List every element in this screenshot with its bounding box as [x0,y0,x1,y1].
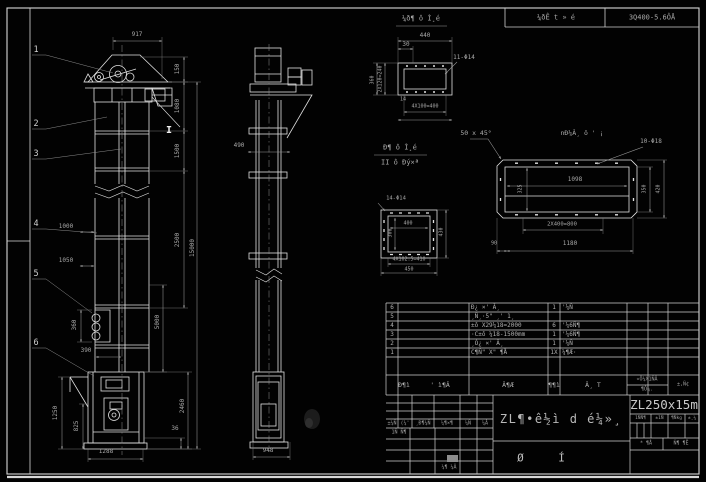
dimension-d1098: 1098 [568,177,582,183]
bom-row-2-no: 2 [390,341,394,347]
dimension-d360a: 360 [371,75,376,84]
bom-header-no: Ð¶ì [398,382,410,389]
dimension-d350: 350 [643,184,648,193]
bom-row-1-name: C¶Ñ" X" ¶Å [471,350,507,356]
date-label: ¼¶ ¼Â [441,466,456,471]
dimension-d430a: 430 [440,227,445,236]
dimension-d420: 420 [657,184,662,193]
bom-header-qty: ¶¶ì [548,382,560,389]
annotation-flange-label: nÐ¼Â¸ ô ' ¡ [560,130,603,137]
bom-row-6-name: Ð¿ ×' Â¸ [471,305,500,311]
header-cell-2: 3Q400-5.6ÔÅ [629,15,675,22]
stage-label-3: ±¸¼ [688,416,696,421]
dimension-d240: 2X120=240 [379,65,384,92]
bom-header-weight-bottom: ¶Ô¼. [641,388,653,393]
dimension-d90: 90 [491,242,497,247]
product-name: ZL¶•ê½ì d é¼»¸ [500,413,622,425]
dimension-d390: 390 [81,348,92,354]
dimension-d825: 825 [74,421,80,432]
callout-4: 4 [33,220,38,229]
callout-6: 6 [33,339,38,348]
bom-row-2-qty: 1 [552,341,556,347]
annotation-note-10-phi18: 10-Φ18 [640,139,662,145]
bom-header-weight-top: «Ô¼X1ÑÂ [636,378,657,383]
dimension-d400b: 400 [403,222,412,227]
dimension-d325: 325 [519,184,524,193]
bom-row-1-qty: 1X [550,350,557,356]
annotation-note-11-phi14: 11-Φ14 [453,55,475,61]
dimension-d1000: 1000 [59,224,73,230]
bom-row-3-mat: '¼6Ñ¶ [562,332,580,338]
bom-row-6-no: 6 [390,305,394,311]
dimension-d800: 2X400=800 [547,222,577,228]
dimension-d1250: 1250 [53,406,59,420]
bom-header-name: Â¶Æ [502,382,514,389]
bom-row-1-mat: ¼¶Æ· [562,350,576,356]
dimension-d2500: 2500 [175,233,181,247]
callout-2: 2 [33,120,38,129]
callout-5: 5 [33,270,38,279]
rev-label-2: ¸Ð¶¼Ñ [415,421,430,426]
callout-1: 1 [33,46,38,55]
dimension-d360: 360 [72,320,78,331]
model-number: ZL250x15m [630,399,698,412]
bom-header-code: ' ì¶Â [430,382,450,389]
detail1-title: ¼ð¶ ô Ì¸é [402,16,440,23]
sheet-label-right: Ñ¶ ¶Ë [673,442,688,447]
dimension-d300: 300 [389,228,394,237]
dimension-d1050: 1050 [59,258,73,264]
bom-row-6-qty: 1 [552,305,556,311]
bom-row-3-no: 3 [390,332,394,338]
dimension-d1288: 1288 [99,449,113,455]
bom-header-material: Â¸ T [585,382,601,389]
annotation-section-mark: I [166,126,172,136]
rev-label-1: (¼' [400,421,409,426]
bom-row-5-name: ¸Ñ¸·5" ¸' 1¸ [471,314,514,320]
dimension-d5000: 5000 [155,315,161,329]
bom-row-1-no: 1 [390,350,394,356]
dimension-d450: 450 [404,268,413,273]
bom-row-4-qty: 6 [552,323,556,329]
annotation-note-14-phi14: 14-Φ14 [386,196,406,202]
bom-row-2-mat: '¼Ñ [562,341,573,347]
stage-label-1: ±1Ñ [655,416,663,421]
bom-row-3-qty: 1 [552,332,556,338]
header-cell-1: ¼ðÊ t » é [537,15,575,22]
callout-3: 3 [33,150,38,159]
dimension-d440: 440 [420,33,431,39]
sheet-label-left: * ¶Å [640,442,652,447]
text-overlay: ¼ð¶ ô Ì¸é ¼ðÊ t » é 3Q400-5.6ÔÅ Ð¶ì ' ì¶… [0,0,706,482]
bom-row-4-mat: '¼6Ñ¶ [562,323,580,329]
dimension-d490: 490 [234,143,245,149]
dimension-d14: 14 [400,98,406,103]
dimension-d948: 948 [263,448,274,454]
cad-drawing-viewport: ¼ð¶ ô Ì¸é ¼ðÊ t » é 3Q400-5.6ÔÅ Ð¶ì ' ì¶… [0,0,706,482]
rev-label-3: ¼¶×¶ [441,421,453,426]
bom-row-4-no: 4 [390,323,394,329]
dimension-d15000: 15000 [190,239,196,257]
rev-label-0: ±¼Ñ [387,421,396,426]
stage-label-2: ¶Ñkg [671,416,682,421]
bom-header-remark: ±,Ñ¢ [677,383,689,388]
bom-row-5-no: 5 [390,314,394,320]
dimension-d917: 917 [132,32,143,38]
bom-row-2-name: ¸Ò¿ ×' Â¸ [471,341,504,347]
bom-row-6-mat: '¼Ñ [562,305,573,311]
drawing-type: Ø Í [517,453,579,464]
annotation-section-label-line2: II ô Ðý×ª [381,160,419,167]
rev-label-4: ¼Ñ [465,421,471,426]
signature-label: 1Ñ Ñ¶ [391,431,406,436]
dimension-d400a: 4X100=400 [411,105,438,110]
dimension-d1080: 1080 [175,99,181,113]
dimension-d150: 150 [175,64,181,75]
bom-row-3-name: ·C±ô ¼18-1500mm [471,332,525,338]
annotation-section-label-line1: Ð¶ ô Ì¸é [383,145,417,152]
bom-row-4-name: ±ô X29¼18=2000 [471,323,522,329]
dimension-d2460: 2460 [180,399,186,413]
dimension-d30: 30 [402,42,409,48]
annotation-note-chamfer: 50 x 45° [460,130,491,137]
dimension-d410: 4X102.5=410 [392,258,425,263]
rev-label-5: ¼Â [482,421,488,426]
stage-label-0: 1ÑÑ¶ [635,416,646,421]
dimension-d1180: 1180 [563,241,577,247]
dimension-d36: 36 [171,426,178,432]
dimension-d1500: 1500 [175,144,181,158]
